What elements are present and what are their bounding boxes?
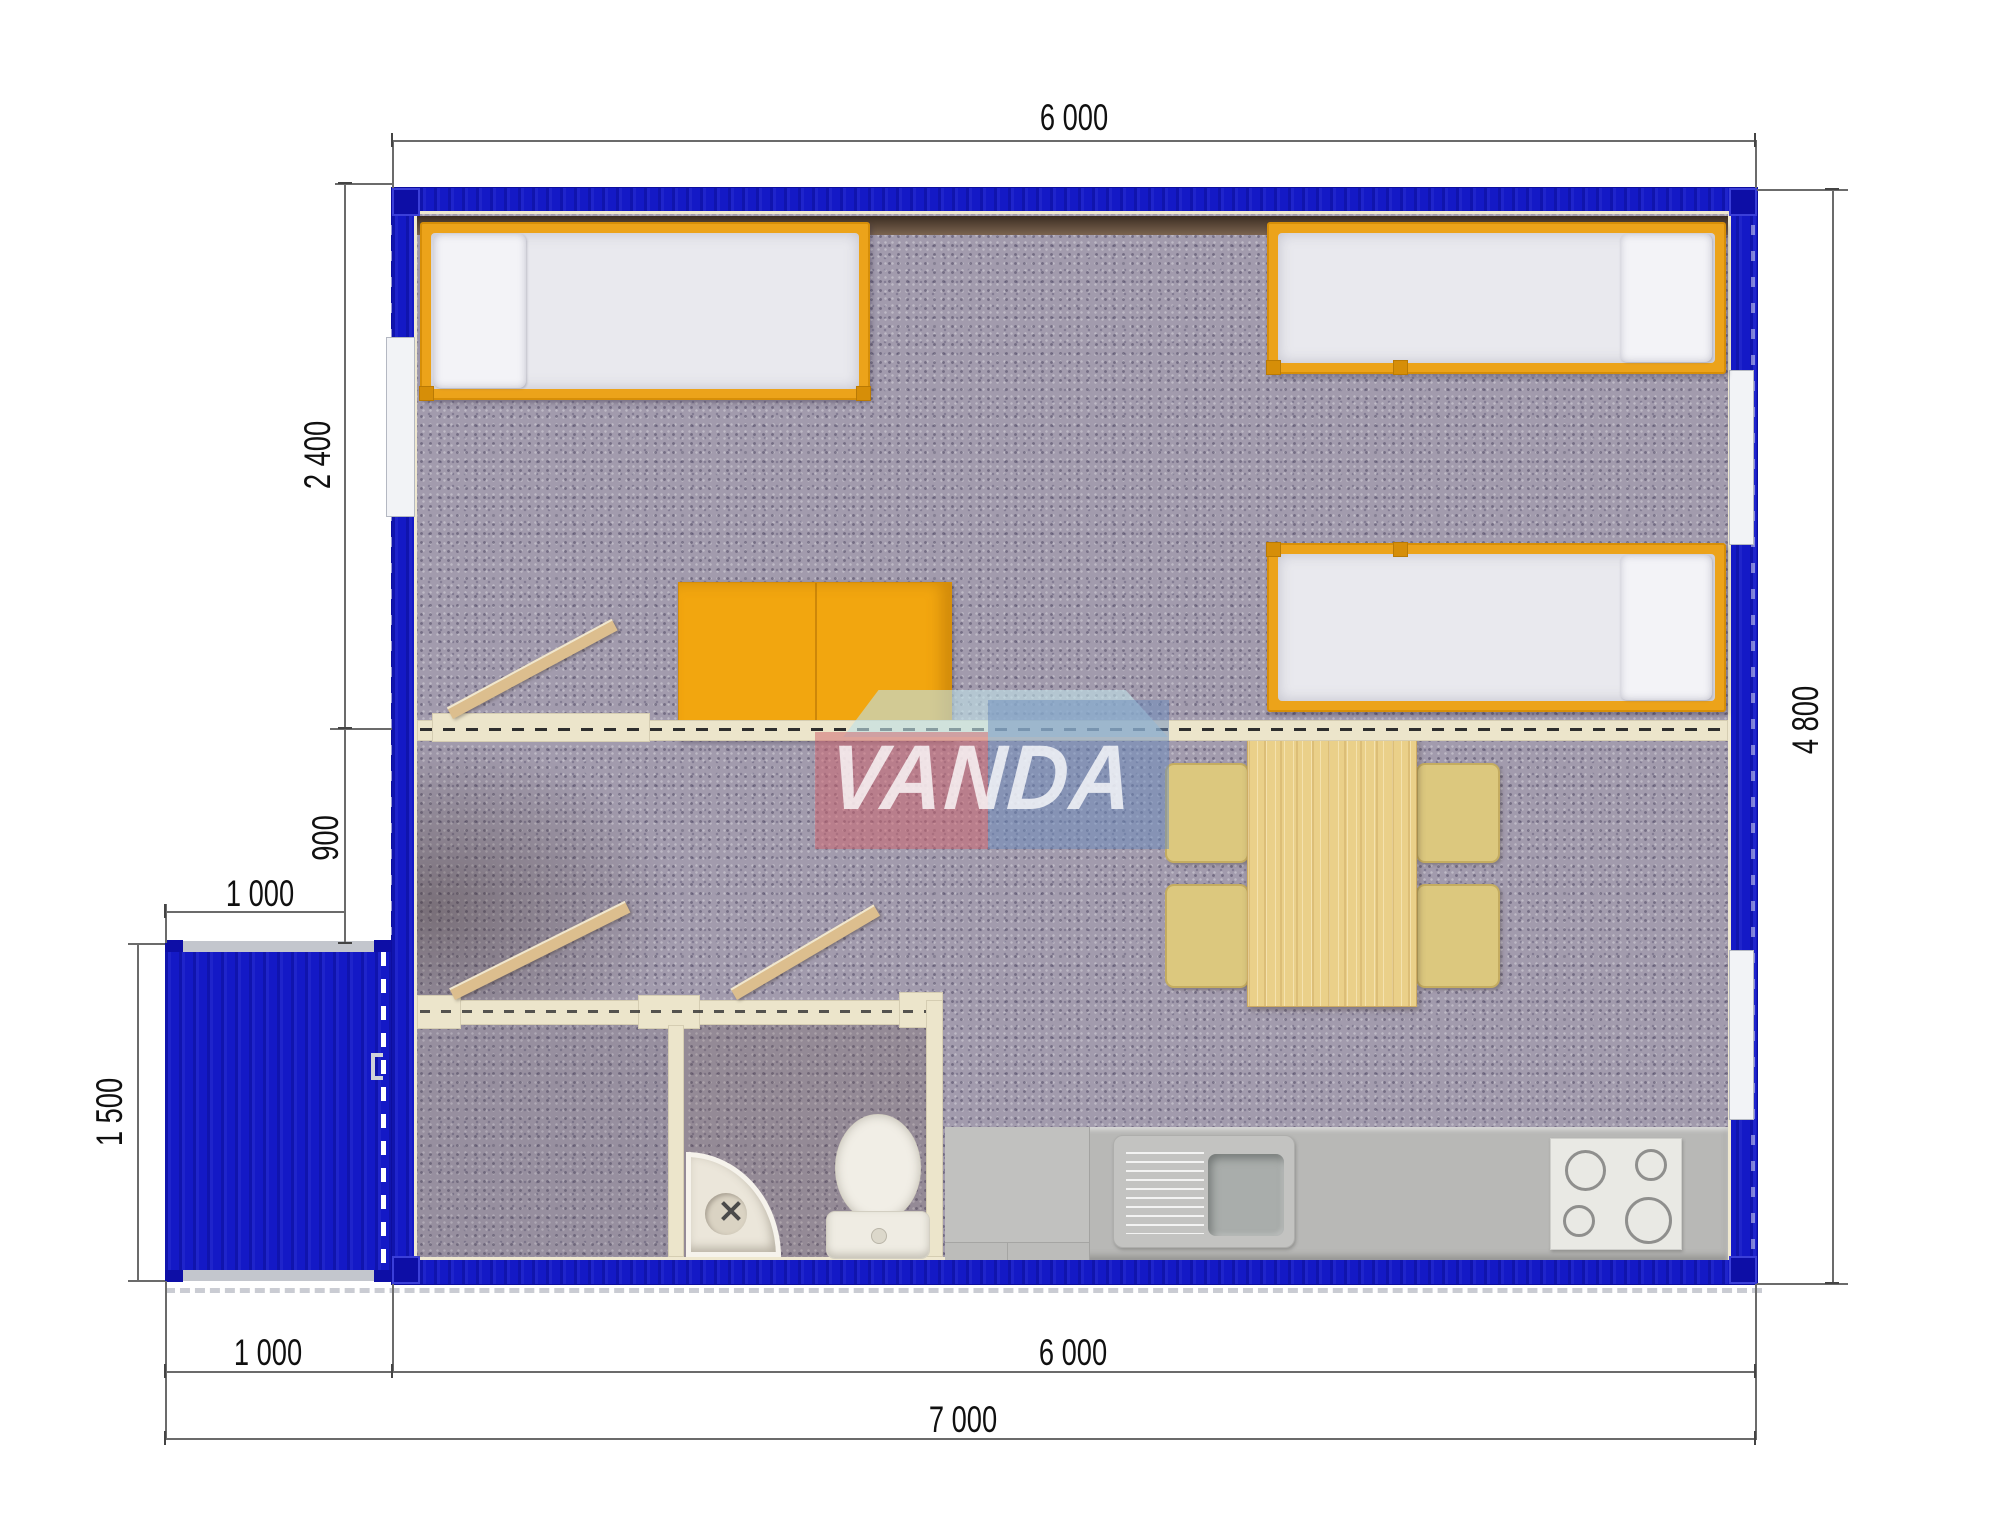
bed-icon: [1267, 222, 1726, 374]
dim-ext: [1755, 140, 1757, 188]
porch-threshold-bottom: [172, 1270, 378, 1281]
dim-tick: [164, 904, 166, 918]
dim-line: [392, 140, 1757, 142]
dim-tick: [338, 942, 352, 944]
stove-icon: [1550, 1138, 1682, 1250]
dim-bottom-building-label: 6 000: [1039, 1334, 1107, 1371]
bed-post: [1393, 360, 1408, 375]
dim-line: [165, 1371, 1757, 1373]
floor-plan-canvas: VANDA 6 000 2 400 900 1 000 1 500 4 800 …: [0, 0, 2000, 1537]
stove-burner: [1635, 1149, 1667, 1181]
bed-post: [856, 386, 871, 401]
bathroom-wall-middle: [668, 1025, 684, 1257]
dining-table-icon: [1247, 738, 1417, 1007]
dim-porch-width-label: 1 000: [226, 875, 294, 912]
dim-ext: [1755, 1284, 1757, 1439]
toilet-tank: [826, 1211, 930, 1259]
bed-pillow: [1620, 555, 1712, 700]
dim-bedroom-depth-label: 2 400: [299, 421, 336, 489]
porch-corner-tab: [165, 940, 183, 952]
dim-ext: [128, 943, 165, 945]
dim-tick: [391, 133, 393, 147]
kitchen-counter-left-section: [945, 1127, 1090, 1260]
shower-room-floor: [417, 1025, 668, 1257]
toilet-icon: [835, 1114, 921, 1222]
partition-wall-centerline: [420, 728, 1725, 731]
bed-pillow: [1620, 234, 1712, 362]
dim-line: [137, 943, 139, 1281]
dim-bottom-total-label: 7 000: [929, 1401, 997, 1438]
window-icon: [386, 337, 415, 517]
bed-post: [1393, 542, 1408, 557]
entry-door-opening: [381, 952, 386, 1270]
dim-tick: [1754, 1364, 1756, 1378]
dim-tick: [164, 1364, 166, 1378]
chair-icon: [1416, 884, 1500, 988]
dim-bottom-porch-label: 1 000: [234, 1334, 302, 1371]
bed-icon: [1267, 543, 1726, 712]
dim-tick: [338, 727, 352, 729]
chair-icon: [1416, 763, 1500, 863]
window-icon: [1729, 950, 1754, 1120]
desk-seam: [815, 583, 817, 740]
bed-pillow: [434, 234, 526, 388]
dim-right-depth-label: 4 800: [1787, 686, 1824, 754]
dim-line: [1832, 189, 1834, 1285]
dim-tick: [1825, 188, 1839, 190]
dim-porch-depth-label: 1 500: [91, 1078, 128, 1146]
dim-ext: [165, 1281, 167, 1439]
corner-casting: [392, 1256, 420, 1284]
dim-corridor-depth-label: 900: [307, 815, 344, 861]
chair-icon: [1165, 884, 1249, 988]
door-handle-icon: [371, 1053, 383, 1080]
sink-drainboard: [1126, 1152, 1204, 1234]
corner-casting: [1729, 188, 1757, 216]
bed-post: [419, 386, 434, 401]
sink-basin: [1208, 1154, 1284, 1236]
corner-casting: [392, 188, 420, 216]
toilet-flush-button: [871, 1228, 887, 1244]
window-icon: [1729, 370, 1754, 545]
bed-post: [1266, 542, 1281, 557]
stove-burner: [1565, 1150, 1606, 1191]
wall-panel-joints: [388, 225, 392, 935]
dim-tick: [164, 1431, 166, 1445]
bed-post: [1266, 360, 1281, 375]
dim-tick: [1754, 133, 1756, 147]
stove-burner: [1563, 1205, 1595, 1237]
dim-ext: [392, 1284, 394, 1372]
dim-tick: [391, 1364, 393, 1378]
dim-top-width-label: 6 000: [1040, 99, 1108, 136]
dim-tick: [338, 182, 352, 184]
dim-tick: [1754, 1431, 1756, 1445]
corner-casting: [1729, 1256, 1757, 1284]
counter-seam: [1007, 1242, 1008, 1260]
base-outline-dashed: [165, 1288, 1762, 1293]
porch: [165, 943, 392, 1281]
desk-icon: [678, 582, 952, 741]
dim-ext: [392, 140, 394, 188]
dim-ext: [128, 1280, 165, 1282]
bathroom-wall-centerline: [420, 1010, 940, 1013]
porch-corner-tab: [374, 940, 392, 952]
counter-seam: [945, 1242, 1089, 1260]
entry-shadow: [417, 741, 672, 1001]
stove-burner: [1625, 1197, 1672, 1244]
porch-corner-tab: [374, 1270, 392, 1282]
bed-icon: [420, 222, 870, 400]
kitchen-sink-icon: [1113, 1135, 1295, 1248]
porch-corner-tab: [165, 1270, 183, 1282]
chair-icon: [1165, 763, 1249, 863]
dim-tick: [1825, 1282, 1839, 1284]
